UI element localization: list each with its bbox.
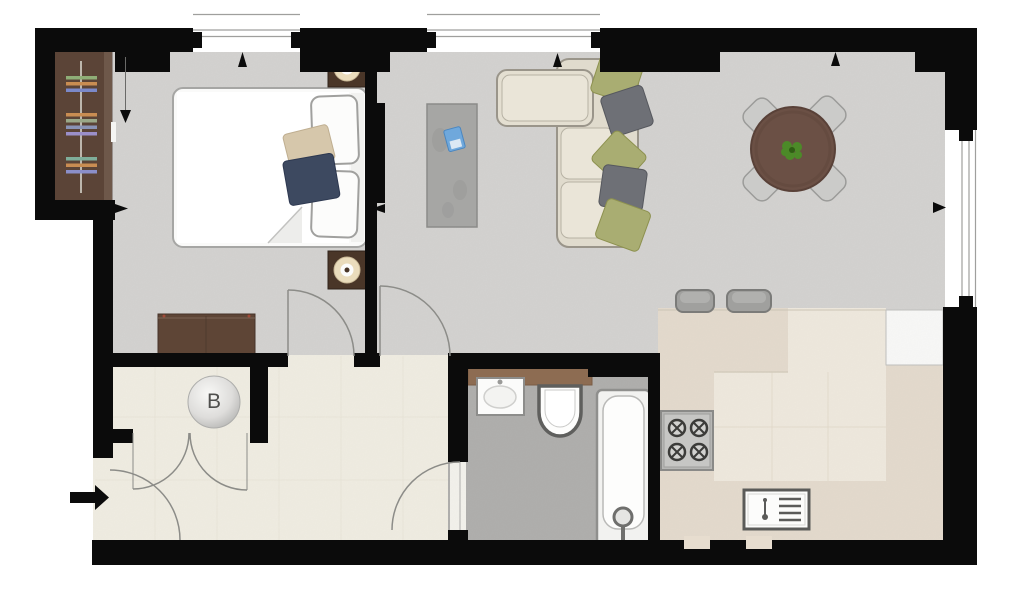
wall-hall-top-stub xyxy=(354,353,380,367)
living-window-tab-right xyxy=(591,32,600,48)
wall-bottom xyxy=(92,540,977,565)
living-window-tab-left xyxy=(427,32,436,48)
wall-step-3 xyxy=(600,52,720,72)
wall-top-right-corner xyxy=(915,28,977,72)
wall-closet-stub xyxy=(112,429,133,443)
divider-door-leaf xyxy=(376,103,385,203)
wardrobe-edge xyxy=(104,52,112,200)
wall-notch-1 xyxy=(684,536,710,549)
wall-bath-left-upper xyxy=(448,353,468,462)
chest-handle-left xyxy=(163,315,166,318)
wall-bath-kitchen xyxy=(648,353,660,545)
wall-top-right xyxy=(600,28,915,52)
chest-handle-right xyxy=(248,315,251,318)
boiler-label: B xyxy=(204,390,224,414)
floor-plan-drawing xyxy=(0,0,1011,592)
wall-top-left xyxy=(35,28,193,52)
bedroom-window xyxy=(193,13,300,52)
clothes-10 xyxy=(66,170,97,174)
bedroom-window-tab-left xyxy=(193,32,202,48)
clothes-5 xyxy=(66,119,97,123)
basin-tap xyxy=(498,380,503,385)
floor-plan: B xyxy=(0,0,1011,592)
clothes-4 xyxy=(66,113,97,117)
side-window-tab-top xyxy=(959,130,973,141)
wall-wardrobe-bottom xyxy=(35,200,115,220)
clothes-2 xyxy=(66,82,97,86)
clothes-3 xyxy=(66,89,97,93)
coffee-table-grain-2 xyxy=(453,180,467,200)
wall-right-lower xyxy=(943,307,977,565)
wall-left-lower xyxy=(93,220,113,458)
lamp-bottom-dot xyxy=(345,268,350,273)
wall-step-1 xyxy=(115,52,170,72)
clothes-1 xyxy=(66,76,97,80)
wall-left-upper xyxy=(35,28,55,220)
toilet-bowl xyxy=(545,390,575,427)
wall-closet-right xyxy=(250,364,268,443)
bar-stool-2-back xyxy=(732,292,766,303)
living-window xyxy=(427,13,600,52)
clothes-9 xyxy=(66,164,97,168)
cushion-navy xyxy=(282,153,340,206)
coffee-table-grain-3 xyxy=(442,202,454,218)
basin-bowl xyxy=(484,386,516,408)
sink-tap-base xyxy=(762,514,768,520)
side-window-tab-bottom xyxy=(959,296,973,307)
wardrobe-door-mark xyxy=(111,122,116,142)
plant-center xyxy=(789,147,795,153)
wall-top-mid xyxy=(300,28,427,52)
plant-leaf-4 xyxy=(794,151,802,159)
sofa-chaise-cushion xyxy=(502,75,588,121)
wall-right-upper xyxy=(945,72,977,130)
kitchen-sink xyxy=(744,490,809,529)
bedroom-window-tab-right xyxy=(291,32,300,48)
plant-leaf-5 xyxy=(781,148,789,156)
sink-tap-head xyxy=(763,498,767,502)
wall-divider xyxy=(365,52,377,357)
clothes-7 xyxy=(66,132,97,136)
wall-notch-2 xyxy=(746,536,772,549)
clothes-8 xyxy=(66,157,97,161)
bathtub-drain xyxy=(614,508,632,526)
bar-stool-1-back xyxy=(680,292,710,303)
clothes-6 xyxy=(66,126,97,130)
